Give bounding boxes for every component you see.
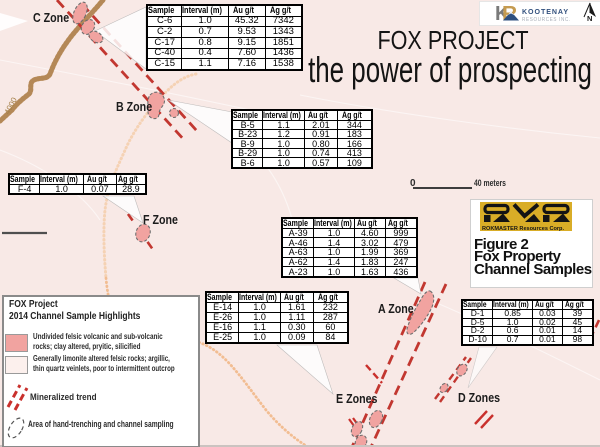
svg-text:0: 0 <box>410 178 416 189</box>
svg-text:40 meters: 40 meters <box>474 178 506 189</box>
